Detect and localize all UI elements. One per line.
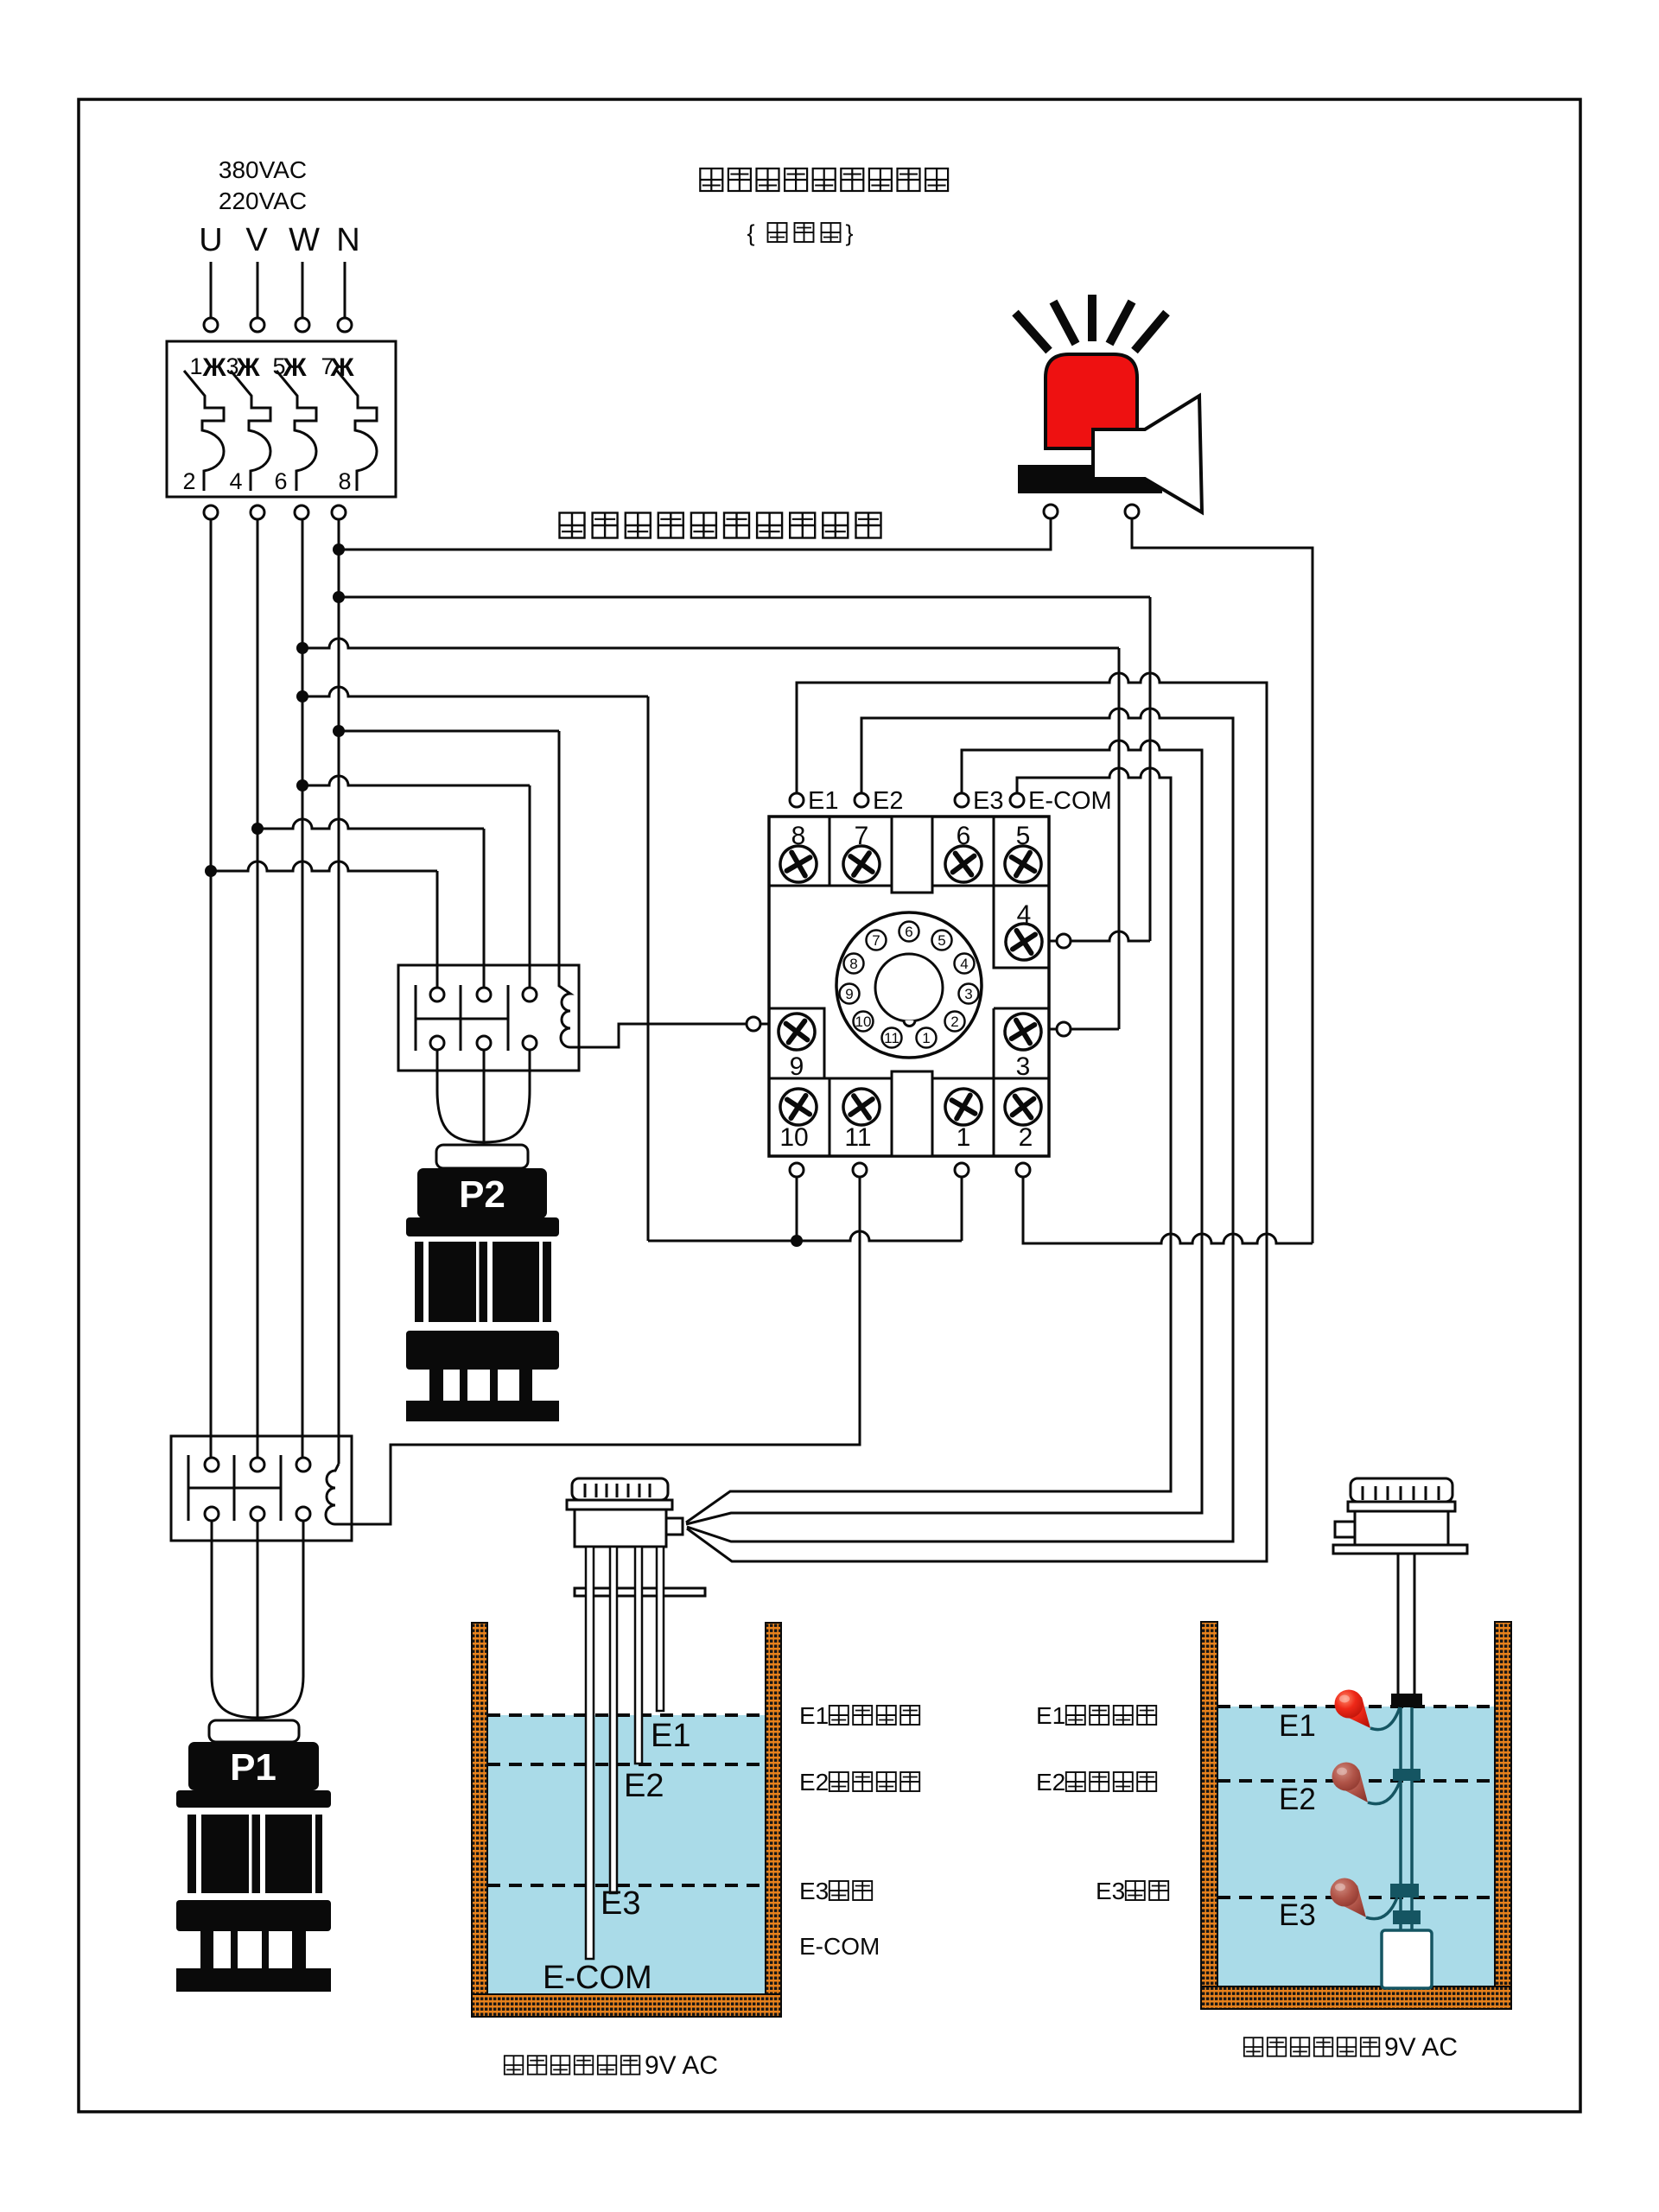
svg-text:2: 2 bbox=[182, 468, 195, 494]
svg-text:220VAC: 220VAC bbox=[219, 188, 307, 214]
svg-text:E3: E3 bbox=[1096, 1878, 1125, 1904]
svg-text:3: 3 bbox=[964, 986, 972, 1002]
svg-text:E2: E2 bbox=[1279, 1783, 1316, 1816]
svg-text:8: 8 bbox=[791, 822, 806, 850]
svg-text:10: 10 bbox=[855, 1014, 872, 1030]
svg-text:11: 11 bbox=[884, 1030, 899, 1046]
svg-text:E2: E2 bbox=[1036, 1769, 1065, 1796]
svg-text:E3: E3 bbox=[799, 1878, 829, 1904]
svg-text:4: 4 bbox=[229, 468, 242, 494]
svg-text:9: 9 bbox=[790, 1052, 804, 1081]
svg-text:E2: E2 bbox=[624, 1768, 664, 1804]
svg-text:E3: E3 bbox=[601, 1885, 640, 1922]
svg-text:E3: E3 bbox=[973, 787, 1003, 815]
svg-text:1: 1 bbox=[189, 353, 202, 379]
svg-text:E-COM: E-COM bbox=[799, 1933, 880, 1960]
svg-text:U: U bbox=[199, 222, 222, 258]
svg-text:E1: E1 bbox=[808, 787, 838, 815]
svg-text:6: 6 bbox=[905, 924, 912, 940]
svg-text:Ж: Ж bbox=[235, 353, 260, 382]
svg-text:11: 11 bbox=[844, 1123, 871, 1152]
svg-text:N: N bbox=[336, 222, 359, 258]
svg-text:5: 5 bbox=[1016, 822, 1031, 850]
svg-text:Ж: Ж bbox=[282, 353, 307, 382]
svg-text:10: 10 bbox=[779, 1123, 808, 1152]
svg-text:}: } bbox=[845, 220, 853, 246]
svg-text:4: 4 bbox=[960, 956, 968, 972]
svg-text:7: 7 bbox=[872, 932, 880, 949]
svg-text:E1: E1 bbox=[1279, 1709, 1316, 1743]
svg-text:9: 9 bbox=[845, 986, 853, 1002]
svg-text:9V AC: 9V AC bbox=[1384, 2033, 1458, 2062]
svg-text:E-COM: E-COM bbox=[1028, 787, 1112, 815]
svg-text:9V AC: 9V AC bbox=[645, 2051, 718, 2080]
svg-text:3: 3 bbox=[1016, 1052, 1031, 1081]
svg-text:{: { bbox=[747, 220, 754, 246]
svg-text:Ж: Ж bbox=[329, 353, 354, 382]
svg-text:E1: E1 bbox=[799, 1702, 829, 1729]
svg-text:P2: P2 bbox=[459, 1173, 505, 1216]
svg-text:W: W bbox=[289, 222, 320, 258]
svg-text:4: 4 bbox=[1017, 900, 1032, 929]
svg-text:7: 7 bbox=[855, 822, 869, 850]
svg-text:E1: E1 bbox=[1036, 1702, 1065, 1729]
svg-text:2: 2 bbox=[950, 1014, 958, 1030]
svg-text:Ж: Ж bbox=[201, 353, 226, 382]
svg-text:P1: P1 bbox=[230, 1746, 276, 1789]
svg-text:E2: E2 bbox=[873, 787, 903, 815]
svg-text:V: V bbox=[245, 222, 268, 258]
svg-text:8: 8 bbox=[338, 468, 351, 494]
svg-text:E3: E3 bbox=[1279, 1898, 1316, 1932]
svg-text:1: 1 bbox=[922, 1030, 930, 1046]
svg-text:6: 6 bbox=[274, 468, 287, 494]
svg-text:E1: E1 bbox=[651, 1718, 690, 1754]
svg-text:8: 8 bbox=[849, 956, 857, 972]
svg-text:1: 1 bbox=[957, 1123, 971, 1152]
svg-text:E2: E2 bbox=[799, 1769, 829, 1796]
svg-text:E-COM: E-COM bbox=[543, 1960, 652, 1996]
svg-text:6: 6 bbox=[957, 822, 971, 850]
svg-text:2: 2 bbox=[1019, 1123, 1033, 1152]
svg-text:5: 5 bbox=[938, 932, 945, 949]
svg-text:380VAC: 380VAC bbox=[219, 156, 307, 183]
